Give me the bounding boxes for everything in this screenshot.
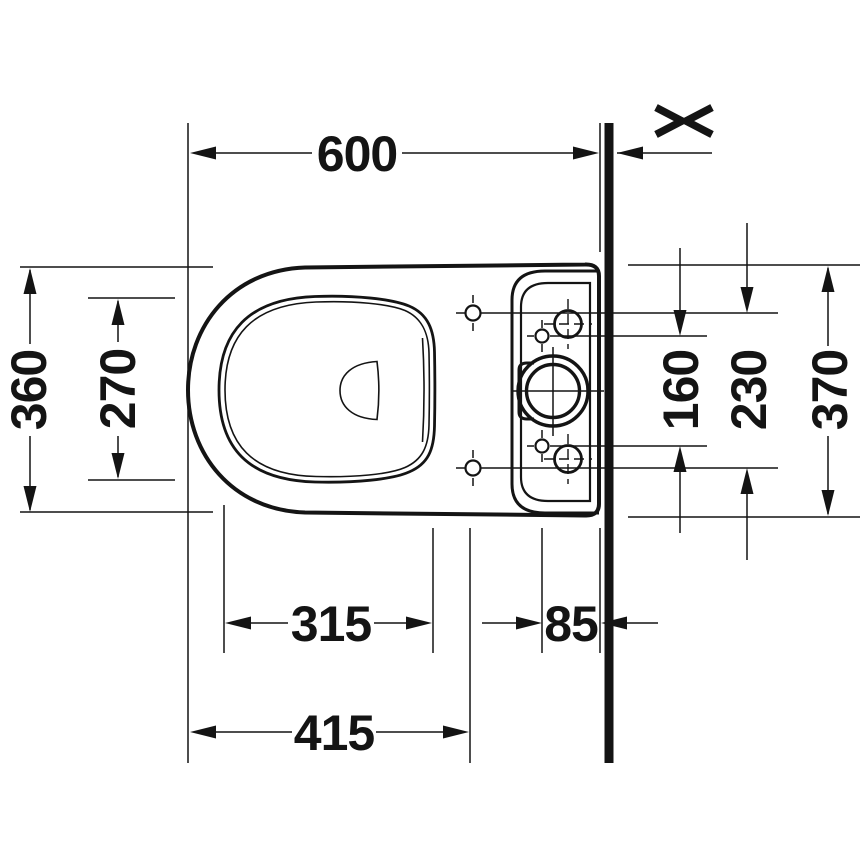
bowl-rim-arc [423,338,425,442]
cistern-hole-small-bottom [536,440,549,453]
dim-label-315: 315 [291,596,372,652]
dim-label-370: 370 [802,350,858,430]
seat-opening-inner [225,302,429,477]
crosshair [456,295,473,331]
toilet-body [188,264,599,515]
dim-label-415: 415 [294,705,375,761]
dim-label-85: 85 [544,596,598,652]
crosshair [544,434,592,484]
dim-label-230: 230 [721,350,777,430]
dim-label-600: 600 [317,126,397,182]
wall-break-icon [686,108,712,135]
crosshair [544,299,592,349]
dimension-labels: 600 360 270 160 230 370 315 85 415 [1,126,858,761]
wall-line [605,123,614,763]
dimension-lines [24,147,835,739]
crosshair [456,450,473,486]
technical-drawing: 600 360 270 160 230 370 315 85 415 [0,0,868,868]
seat-fixing-hole-top [466,306,481,321]
cistern-hole-small-top [536,330,549,343]
mounting-holes [456,295,604,486]
dim-label-270: 270 [90,349,146,429]
flush-water-mark [340,362,379,420]
dim-label-160: 160 [653,350,709,430]
seat-fixing-hole-bottom [466,461,481,476]
wall [605,108,713,764]
dim-label-360: 360 [1,350,57,430]
extension-lines [20,123,860,763]
seat-opening-outer [219,296,435,482]
